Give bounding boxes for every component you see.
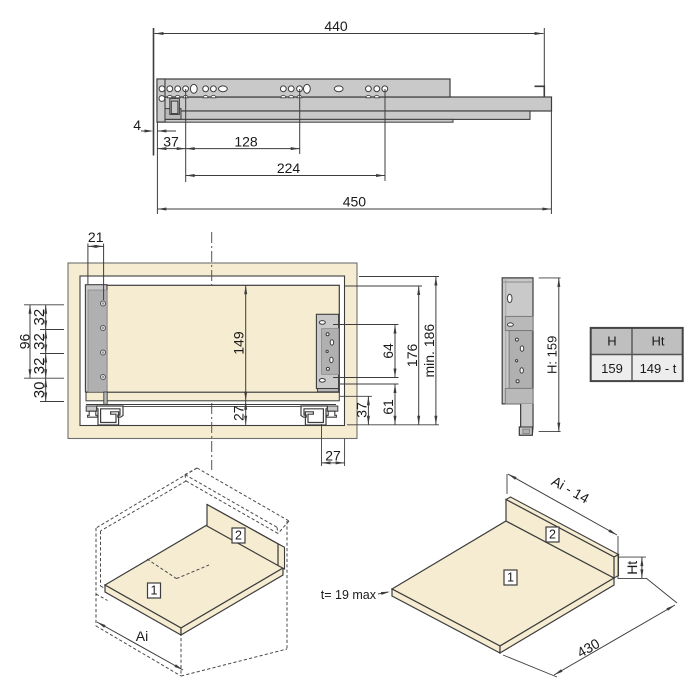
svg-text:Ht: Ht (624, 561, 640, 575)
svg-text:Ai: Ai (136, 628, 148, 644)
svg-text:2: 2 (549, 528, 556, 542)
svg-text:27: 27 (231, 405, 247, 421)
svg-text:96: 96 (16, 334, 32, 350)
svg-text:1: 1 (151, 584, 158, 598)
svg-text:32: 32 (31, 309, 48, 326)
svg-text:H: H (607, 333, 616, 348)
svg-text:21: 21 (88, 229, 104, 245)
svg-text:61: 61 (380, 399, 396, 415)
svg-text:37: 37 (163, 133, 179, 149)
svg-text:4: 4 (133, 117, 141, 133)
svg-text:Ht: Ht (652, 333, 665, 348)
svg-text:32: 32 (31, 333, 48, 350)
svg-text:64: 64 (380, 343, 396, 359)
svg-text:149 - t: 149 - t (640, 361, 677, 376)
svg-text:1: 1 (507, 571, 514, 585)
svg-text:30: 30 (31, 382, 48, 399)
svg-text:159: 159 (601, 361, 623, 376)
svg-text:128: 128 (234, 133, 258, 149)
svg-text:min. 186: min. 186 (421, 324, 437, 378)
svg-text:176: 176 (404, 344, 420, 368)
svg-text:149: 149 (231, 331, 247, 355)
svg-text:2: 2 (235, 529, 242, 543)
svg-text:t= 19 max: t= 19 max (321, 588, 377, 602)
svg-text:H: 159: H: 159 (544, 336, 559, 374)
svg-text:37: 37 (354, 402, 370, 418)
svg-text:440: 440 (324, 18, 348, 34)
svg-text:27: 27 (325, 447, 341, 463)
svg-text:450: 450 (343, 194, 367, 210)
svg-text:32: 32 (31, 358, 48, 375)
svg-text:224: 224 (277, 160, 301, 176)
